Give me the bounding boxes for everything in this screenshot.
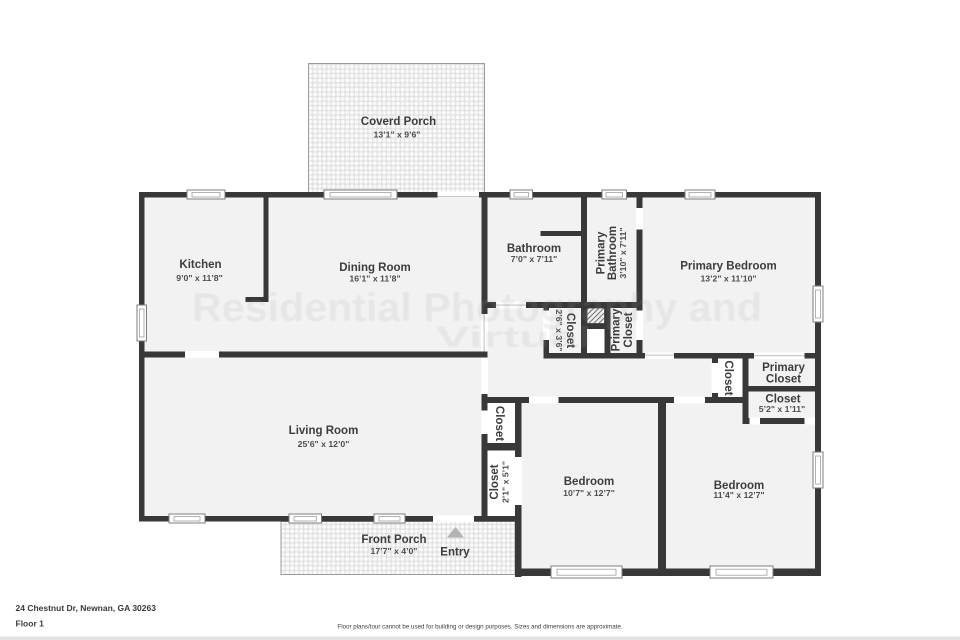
svg-text:25’6" x 12’0": 25’6" x 12’0"	[298, 439, 350, 449]
svg-text:Floor plans/tour cannot be use: Floor plans/tour cannot be used for buil…	[337, 624, 622, 631]
svg-text:Virtual: Virtual	[436, 321, 592, 354]
svg-text:17’7" x 4’0": 17’7" x 4’0"	[371, 546, 418, 556]
svg-text:13’2" x 11’10": 13’2" x 11’10"	[700, 274, 756, 284]
svg-text:16’1" x 11’8": 16’1" x 11’8"	[349, 274, 400, 284]
svg-text:2’1" x 5’1": 2’1" x 5’1"	[501, 461, 511, 503]
svg-text:Primary Bedroom: Primary Bedroom	[680, 261, 777, 273]
svg-text:Closet: Closet	[489, 464, 501, 499]
svg-text:Living Room: Living Room	[289, 425, 359, 437]
svg-text:7’0" x 7’11": 7’0" x 7’11"	[511, 254, 557, 264]
svg-text:Primary: Primary	[596, 231, 608, 274]
svg-text:Closet: Closet	[722, 360, 734, 395]
svg-text:3’10" x 7’11": 3’10" x 7’11"	[618, 227, 628, 278]
svg-text:13’1" x 9’6": 13’1" x 9’6"	[374, 130, 421, 140]
svg-text:10’7" x 12’7": 10’7" x 12’7"	[563, 488, 615, 498]
svg-text:Floor 1: Floor 1	[16, 619, 45, 629]
svg-text:9’0" x 11’8": 9’0" x 11’8"	[176, 273, 222, 283]
svg-text:Closet: Closet	[766, 374, 801, 386]
svg-text:Dining Room: Dining Room	[339, 262, 411, 274]
svg-text:Entry: Entry	[440, 547, 470, 559]
svg-text:Kitchen: Kitchen	[179, 259, 221, 271]
svg-text:24 Chestnut Dr, Newnan, GA 302: 24 Chestnut Dr, Newnan, GA 30263	[16, 603, 157, 613]
svg-text:Closet: Closet	[493, 406, 505, 441]
svg-text:11’4" x 12’7": 11’4" x 12’7"	[713, 490, 764, 500]
svg-text:Coverd Porch: Coverd Porch	[361, 116, 436, 128]
svg-text:Primary: Primary	[762, 362, 805, 374]
svg-text:Front Porch: Front Porch	[361, 534, 426, 546]
svg-text:Bedroom: Bedroom	[564, 476, 614, 488]
svg-text:5’2" x 1’11": 5’2" x 1’11"	[759, 404, 805, 414]
